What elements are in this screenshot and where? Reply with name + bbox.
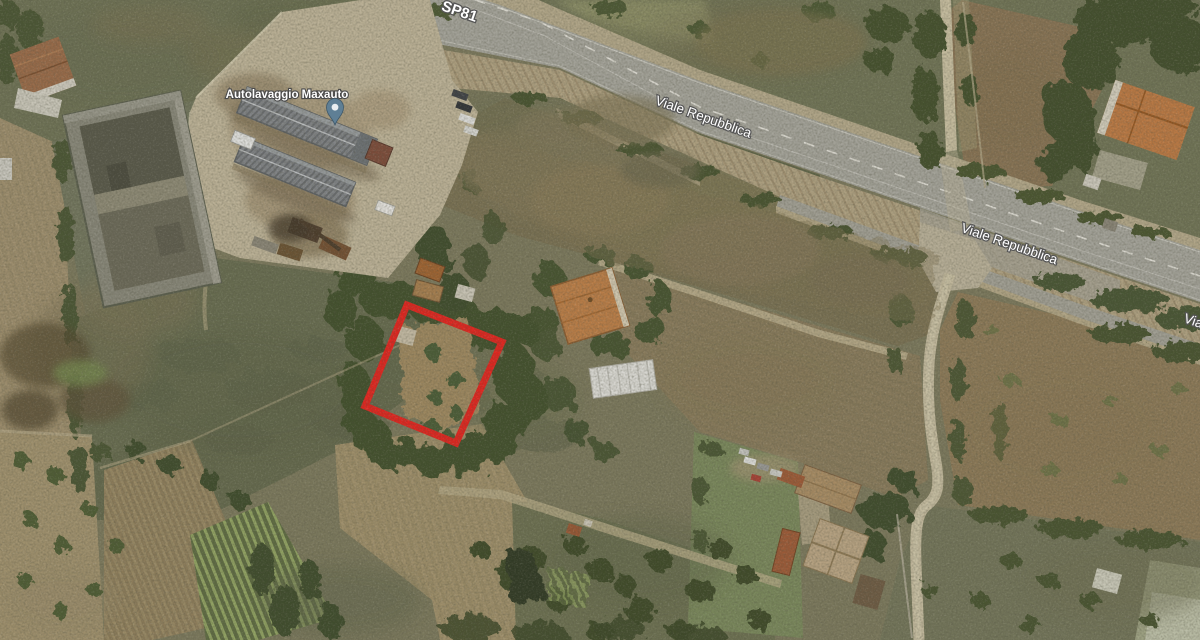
svg-text:Autolavaggio Maxauto: Autolavaggio Maxauto — [226, 89, 349, 101]
